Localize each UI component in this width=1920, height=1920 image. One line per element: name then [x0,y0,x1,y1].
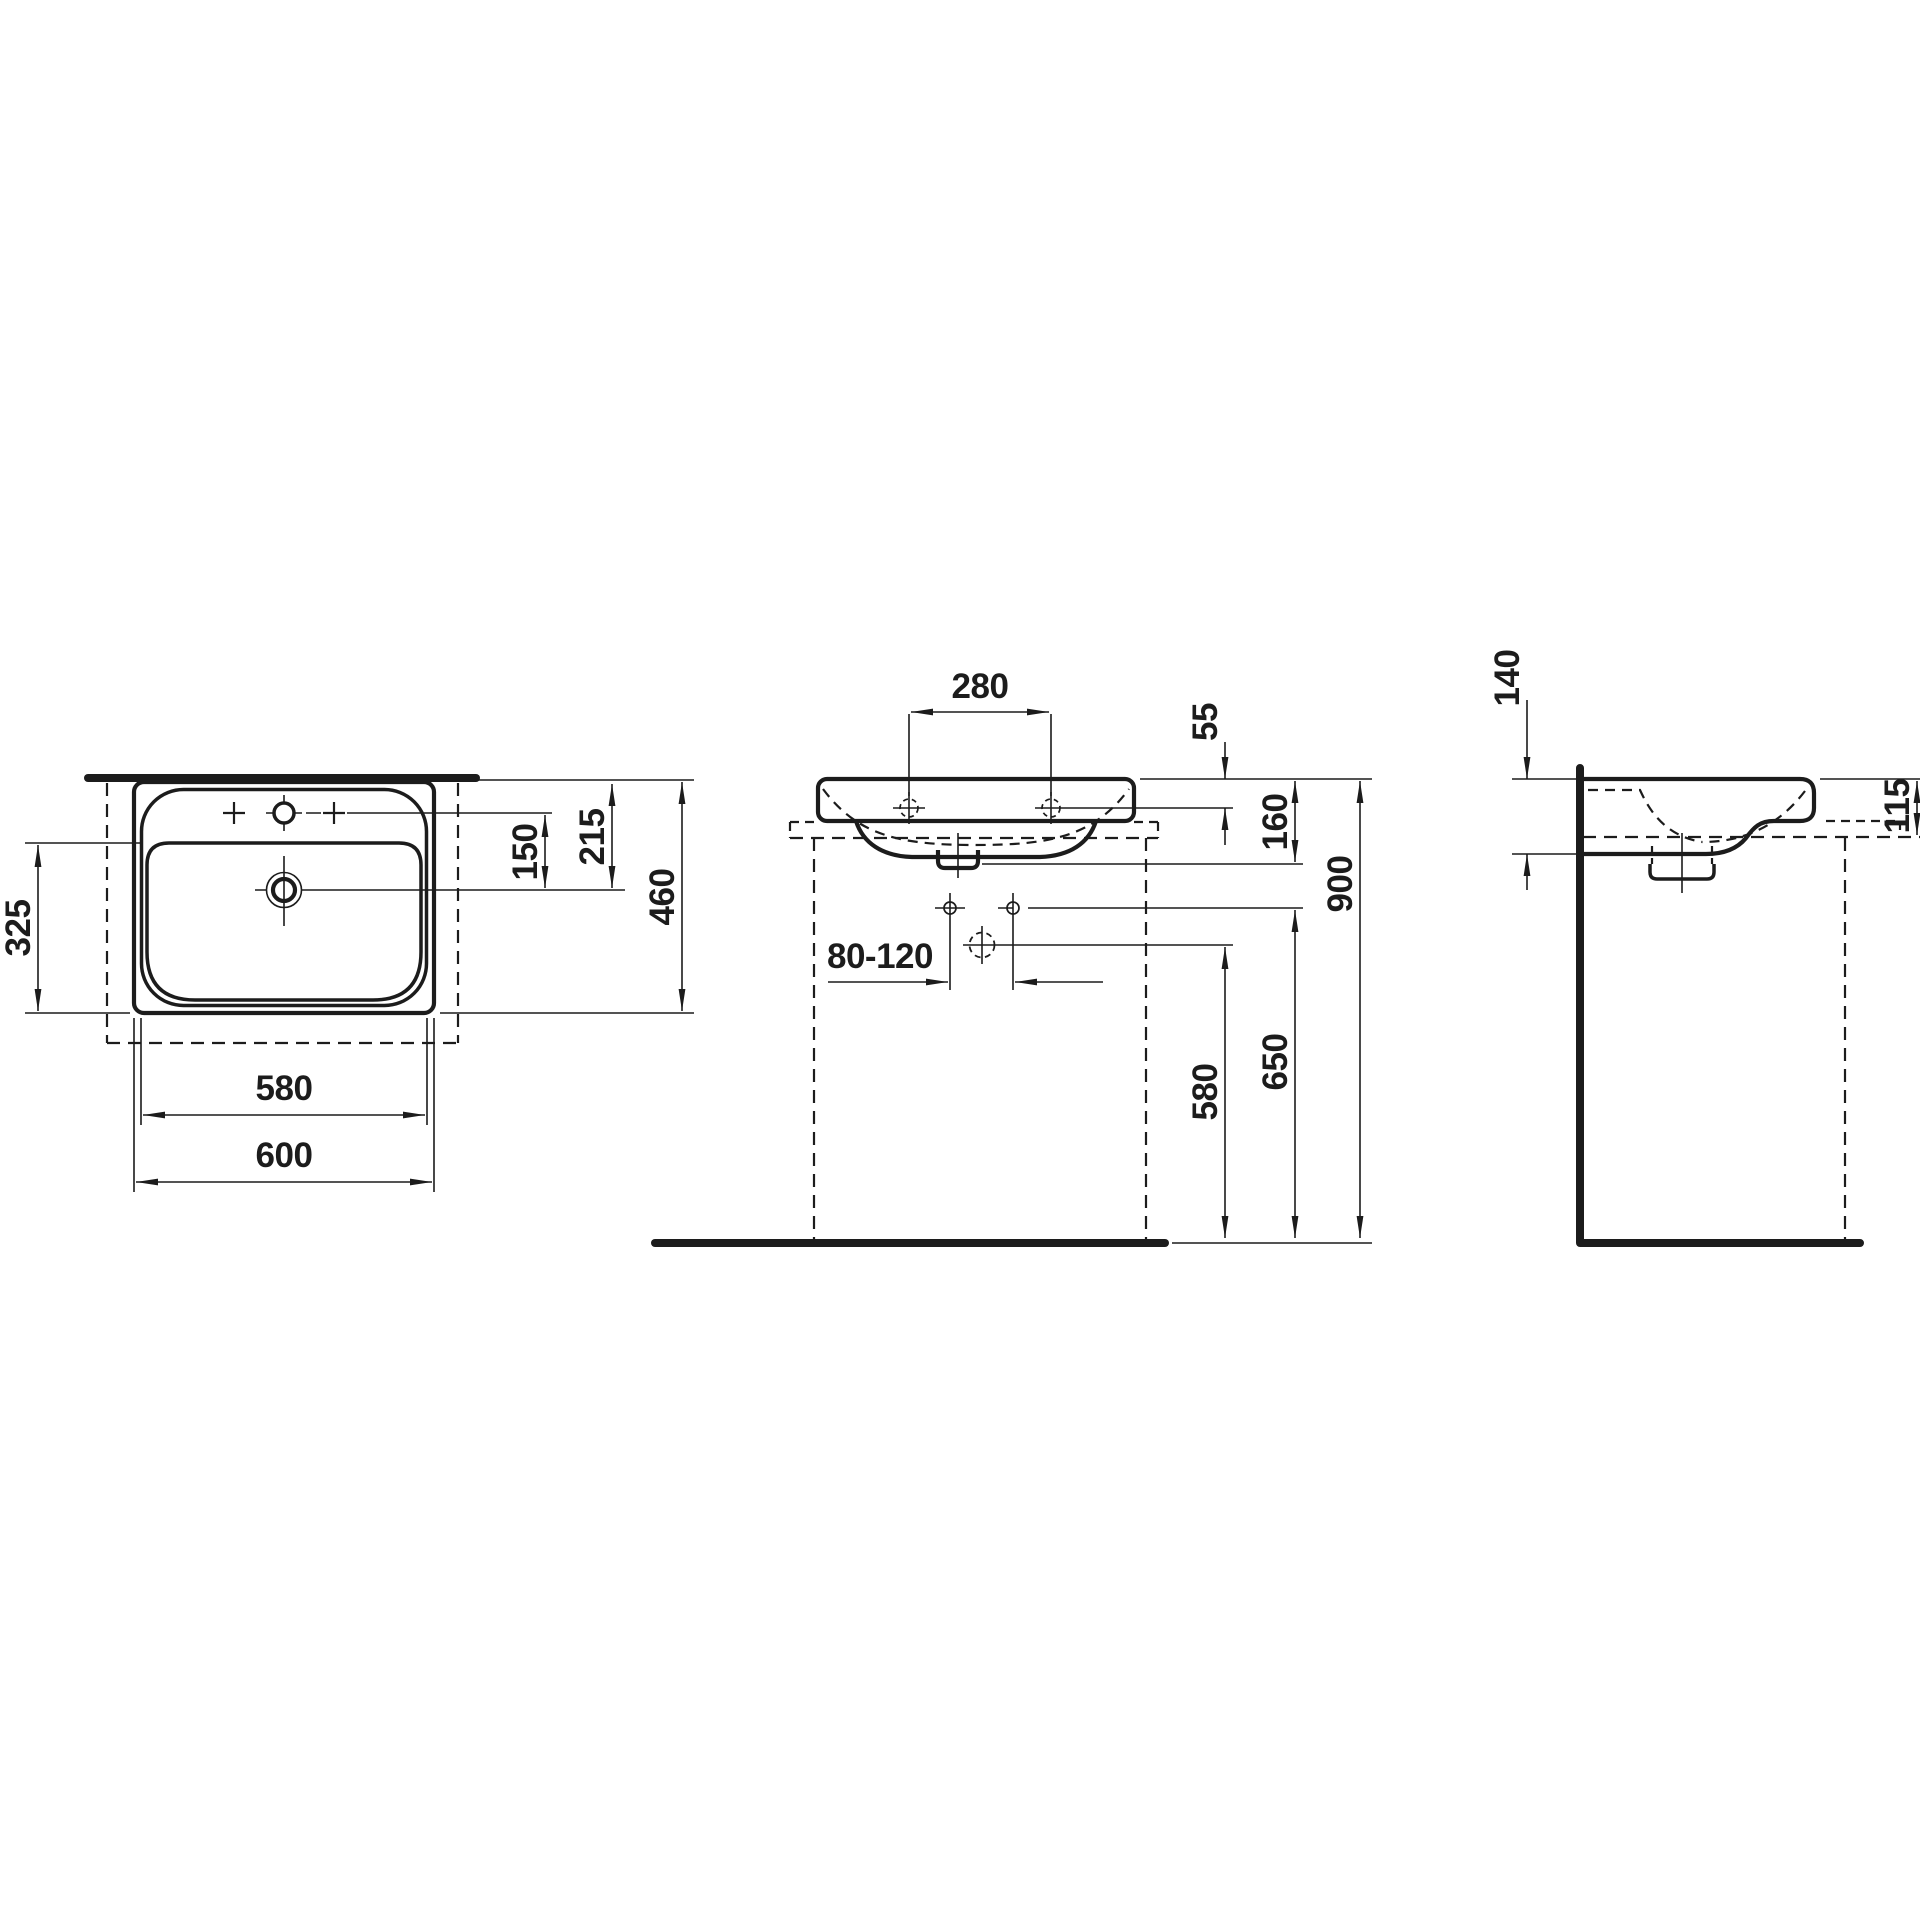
water-supply-left-icon [935,893,965,923]
front-view: 280 55 160 80-120 900 [655,667,1372,1243]
dim-label-hole-spacing: 280 [952,667,1009,706]
dim-label-overall-width: 600 [256,1136,313,1175]
dim-label-bowl-depth: 325 [0,900,38,957]
dim-label-outlet-offset-range: 80-120 [827,937,933,976]
drain-trap-side [1650,833,1714,893]
dim-label-rear-edge-height: 115 [1878,778,1917,833]
top-view: 325 580 600 460 215 150 [0,778,694,1192]
water-supply-right-icon [998,893,1303,923]
basin-outline-front [818,779,1134,821]
hidden-bowl-curve-side [1702,791,1805,842]
dim-label-basin-width: 580 [256,1069,313,1108]
ext-lines-280 [909,714,1051,796]
dim-label-top-to-fixing-hole: 55 [1186,703,1225,741]
dim-label-top-to-outlet: 160 [1256,794,1295,851]
washbasin-dimension-drawing: 325 580 600 460 215 150 [0,0,1920,1920]
tap-hole-icon [266,795,302,831]
drain-icon-top [255,856,625,926]
dim-label-overall-depth: 460 [643,869,682,926]
hidden-rear-box-front [790,822,1158,838]
drain-outlet-icon [963,926,1233,964]
technical-drawing-page: 325 580 600 460 215 150 [0,0,1920,1920]
dim-label-supply-height: 650 [1256,1034,1295,1091]
dim-label-rim-height: 900 [1321,856,1360,913]
dim-label-edge-to-drain: 215 [573,809,612,866]
dim-label-taphole-to-drain: 150 [506,824,545,881]
side-view: 140 115 [1488,650,1920,1243]
wall-floor-line-side [1580,768,1860,1243]
ext-lines-140 [1512,779,1578,854]
optional-taphole-cross-left [223,802,245,824]
dim-label-rear-height: 140 [1488,650,1527,707]
optional-taphole-cross-right [323,802,345,824]
hidden-bowl-curve-front [823,789,1129,845]
ext-lines-325 [25,843,140,1013]
hidden-ledge-side [1588,790,1702,842]
pedestal-dashed-outline-front [814,838,1146,1240]
dim-label-drain-height: 580 [1186,1064,1225,1121]
